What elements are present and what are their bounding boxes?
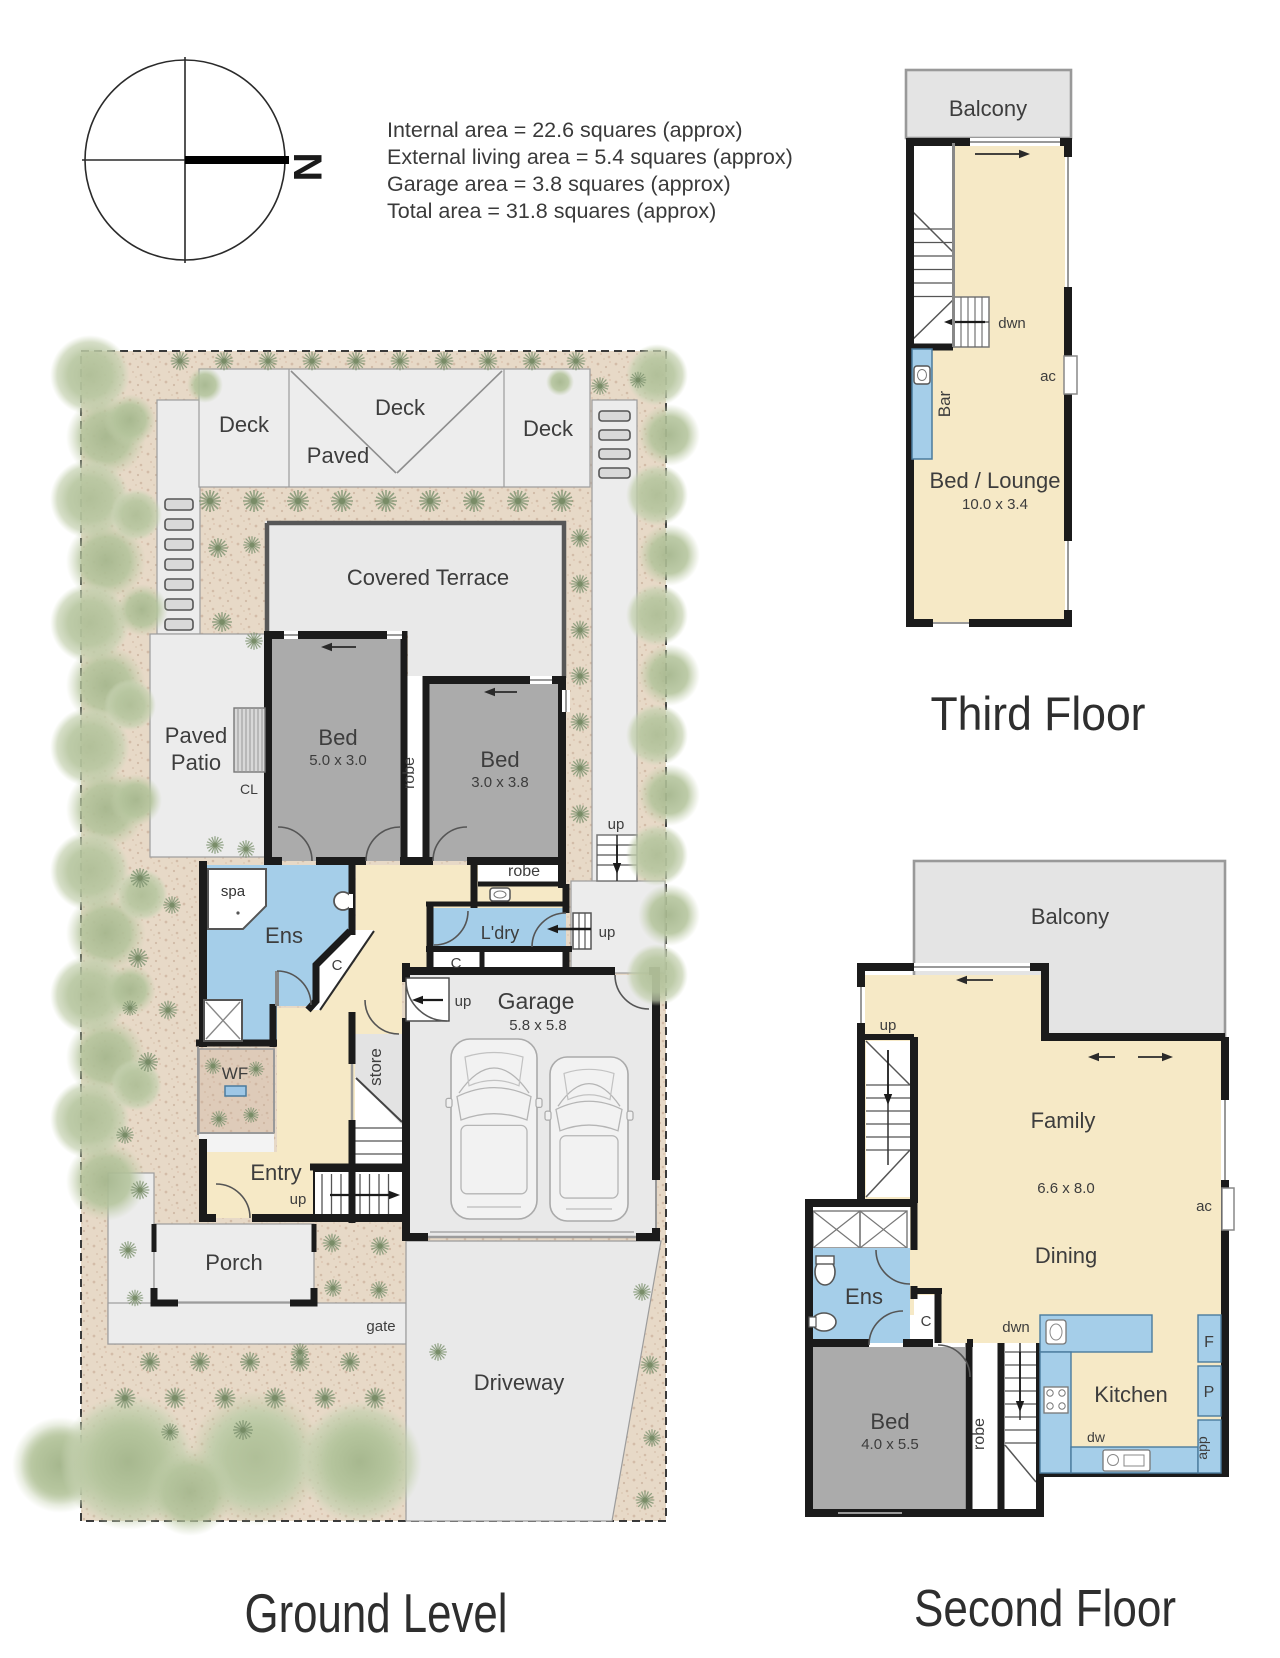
svg-text:Bed: Bed — [480, 747, 519, 772]
svg-text:Covered Terrace: Covered Terrace — [347, 565, 509, 590]
svg-text:up: up — [290, 1191, 307, 1208]
svg-text:robe: robe — [971, 1418, 988, 1450]
svg-text:Ens: Ens — [845, 1284, 883, 1309]
svg-text:dwn: dwn — [1002, 1319, 1030, 1336]
svg-text:Ground Level: Ground Level — [245, 1582, 508, 1644]
svg-text:Balcony: Balcony — [1031, 904, 1109, 929]
svg-text:5.0 x 3.0: 5.0 x 3.0 — [309, 752, 367, 769]
svg-text:5.8 x 5.8: 5.8 x 5.8 — [509, 1017, 567, 1034]
svg-text:up: up — [608, 816, 625, 833]
svg-text:robe: robe — [508, 863, 540, 880]
svg-text:Kitchen: Kitchen — [1094, 1382, 1167, 1407]
svg-text:robe: robe — [401, 757, 418, 789]
svg-text:C: C — [451, 955, 462, 972]
svg-text:spa: spa — [221, 883, 246, 900]
svg-text:C: C — [332, 957, 343, 974]
svg-text:4.0 x 5.5: 4.0 x 5.5 — [861, 1436, 919, 1453]
svg-text:up: up — [880, 1017, 897, 1034]
svg-text:Ens: Ens — [265, 923, 303, 948]
svg-text:Deck: Deck — [375, 395, 426, 420]
svg-text:Total area = 31.8 squares (app: Total area = 31.8 squares (approx) — [387, 199, 716, 223]
svg-text:L'dry: L'dry — [481, 923, 519, 943]
svg-text:Deck: Deck — [219, 412, 270, 437]
svg-text:C: C — [921, 1313, 932, 1330]
svg-text:CL: CL — [240, 781, 258, 797]
svg-text:up: up — [599, 924, 616, 941]
svg-text:External living area = 5.4 squ: External living area = 5.4 squares (appr… — [387, 145, 793, 169]
svg-text:WF: WF — [222, 1064, 248, 1083]
svg-text:ac: ac — [1040, 368, 1056, 385]
svg-text:6.6 x 8.0: 6.6 x 8.0 — [1037, 1180, 1095, 1197]
svg-text:Bar: Bar — [935, 390, 954, 417]
svg-text:Second Floor: Second Floor — [914, 1580, 1176, 1638]
svg-text:10.0 x 3.4: 10.0 x 3.4 — [962, 496, 1028, 513]
svg-text:gate: gate — [366, 1318, 395, 1335]
svg-text:Porch: Porch — [205, 1250, 262, 1275]
svg-text:Garage area = 3.8 squares (app: Garage area = 3.8 squares (approx) — [387, 172, 731, 196]
svg-text:app: app — [1194, 1436, 1210, 1460]
svg-text:ac: ac — [1196, 1198, 1212, 1215]
svg-text:up: up — [455, 993, 472, 1010]
svg-text:Entry: Entry — [250, 1160, 301, 1185]
svg-text:store: store — [366, 1048, 385, 1086]
svg-text:Family: Family — [1031, 1108, 1096, 1133]
svg-text:Garage: Garage — [498, 988, 575, 1014]
svg-text:Dining: Dining — [1035, 1243, 1097, 1268]
svg-text:Internal area = 22.6 squares (: Internal area = 22.6 squares (approx) — [387, 118, 743, 142]
svg-text:N: N — [285, 153, 329, 182]
svg-text:Bed: Bed — [870, 1409, 909, 1434]
svg-text:Paved: Paved — [165, 723, 227, 748]
svg-text:Deck: Deck — [523, 416, 574, 441]
svg-text:dwn: dwn — [998, 315, 1026, 332]
svg-text:Paved: Paved — [307, 443, 369, 468]
svg-text:Bed: Bed — [318, 725, 357, 750]
svg-text:Driveway: Driveway — [474, 1370, 564, 1395]
svg-text:Balcony: Balcony — [949, 96, 1027, 121]
svg-text:dw: dw — [1087, 1429, 1106, 1445]
svg-text:Bed / Lounge: Bed / Lounge — [930, 468, 1061, 493]
svg-text:3.0 x 3.8: 3.0 x 3.8 — [471, 774, 529, 791]
svg-text:Patio: Patio — [171, 750, 221, 775]
svg-text:F: F — [1204, 1334, 1214, 1351]
svg-text:Third Floor: Third Floor — [931, 687, 1146, 740]
svg-text:P: P — [1204, 1384, 1215, 1401]
